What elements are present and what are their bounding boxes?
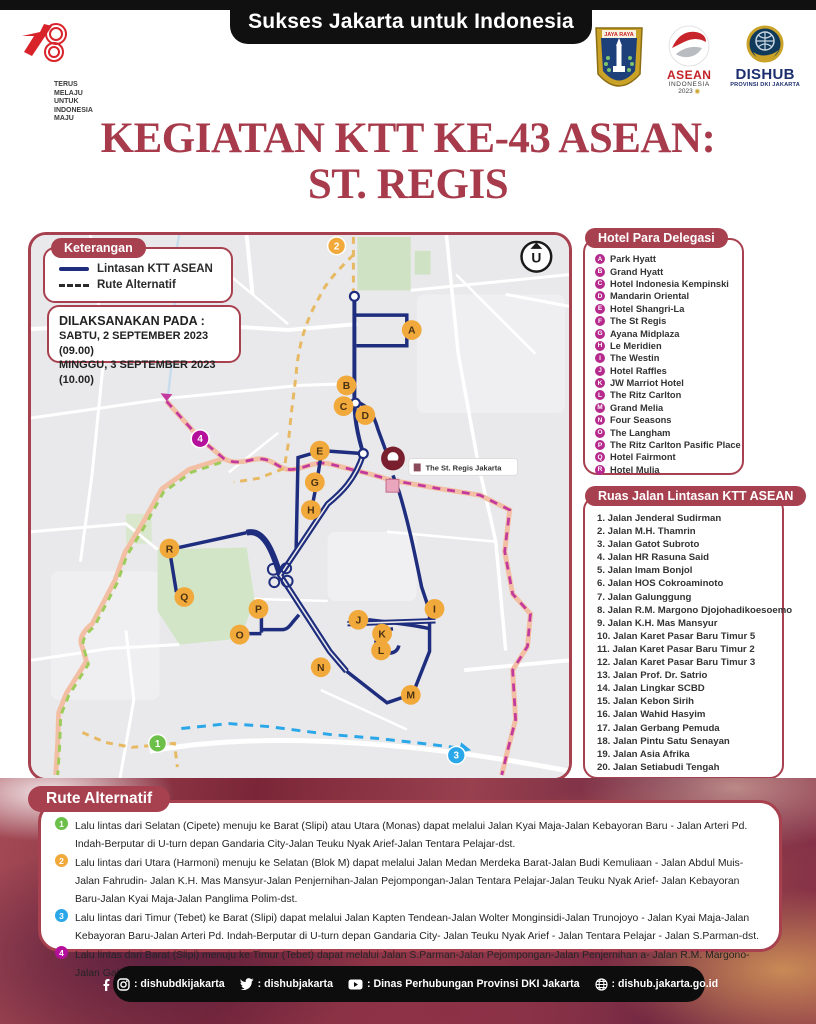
hotel-list-item: G Ayana Midplaza: [595, 327, 742, 339]
hut-ri-78-logo: TERUSMELAJUUNTUKINDONESIAMAJU: [18, 22, 158, 124]
header-logos: JAYA RAYA ASEAN INDONESIA 2023 ◉ DISHUB …: [590, 24, 800, 100]
svg-text:H: H: [307, 506, 315, 517]
svg-text:4: 4: [197, 434, 203, 445]
hotel-letter-bullet: O: [595, 428, 605, 438]
hotel-list-item: P The Ritz Carlton Pasific Place: [595, 439, 742, 451]
footer-item-youtube[interactable]: : Dinas Perhubungan Provinsi DKI Jakarta: [348, 978, 580, 990]
svg-text:B: B: [343, 381, 351, 392]
asean-logo-line3: 2023 ◉: [678, 88, 700, 96]
legend-item: Rute Alternatif: [59, 277, 231, 293]
twitter-icon: [240, 978, 254, 990]
road-list-item: 1. Jalan Jenderal Sudirman: [597, 513, 782, 526]
svg-text:D: D: [362, 411, 370, 422]
hotel-list-item: F The St Regis: [595, 315, 742, 327]
hotel-list-item: Q Hotel Fairmont: [595, 451, 742, 463]
road-list-item: 5. Jalan Imam Bonjol: [597, 565, 782, 578]
footer-item-facebook-instagram[interactable]: : dishubdkijakarta: [100, 978, 225, 991]
hotel-panel-badge: Hotel Para Delegasi: [585, 228, 728, 248]
page-title-line1: KEGIATAN KTT KE-43 ASEAN:: [0, 116, 816, 162]
svg-text:2: 2: [334, 241, 340, 252]
hotel-letter-bullet: G: [595, 329, 605, 339]
alt-route-number: 3: [55, 909, 68, 922]
alt-route-item: 1 Lalu lintas dari Selatan (Cipete) menu…: [55, 816, 765, 852]
road-list-item: 19. Jalan Asia Afrika: [597, 749, 782, 762]
asean-2023-logo: ASEAN INDONESIA 2023 ◉: [662, 24, 716, 96]
legend-label: Rute Alternatif: [97, 279, 176, 291]
hotel-letter-bullet: K: [595, 378, 605, 388]
park-monas: [357, 237, 410, 290]
footer-item-twitter[interactable]: : dishubjakarta: [240, 978, 333, 990]
hotel-list-item: I The Westin: [595, 352, 742, 364]
top-banner: Sukses Jakarta untuk Indonesia: [230, 0, 592, 44]
78-logo-icon: [18, 22, 74, 74]
alt-route-item: 3 Lalu lintas dari Timur (Tebet) ke Bara…: [55, 908, 765, 944]
hotel-list-item: O The Langham: [595, 426, 742, 438]
svg-text:G: G: [311, 478, 319, 489]
hotel-letter-bullet: R: [595, 465, 605, 475]
asean-logo-line2: INDONESIA: [669, 81, 710, 88]
road-list-item: 11. Jalan Karet Pasar Baru Timur 2: [597, 644, 782, 657]
road-list-item: 17. Jalan Gerbang Pemuda: [597, 723, 782, 736]
hotel-letter-bullet: I: [595, 353, 605, 363]
dishub-logo-line1: DISHUB: [735, 68, 794, 82]
alt-route-number: 1: [55, 817, 68, 830]
road-list-item: 8. Jalan R.M. Margono Djojohadikoesoemo: [597, 605, 782, 618]
road-list-item: 6. Jalan HOS Cokroaminoto: [597, 578, 782, 591]
road-list-item: 15. Jalan Kebon Sirih: [597, 696, 782, 709]
schedule-row-2: MINGGU, 3 SEPTEMBER 2023 (10.00): [59, 358, 239, 387]
svg-text:3: 3: [454, 751, 460, 762]
roads-panel: 1. Jalan Jenderal Sudirman2. Jalan M.H. …: [583, 496, 784, 779]
legend-box: Keterangan Lintasan KTT ASEAN Rute Alter…: [43, 247, 233, 303]
svg-text:L: L: [378, 646, 385, 657]
hotel-list-item: D Mandarin Oriental: [595, 290, 742, 302]
globe-icon: [595, 978, 608, 991]
page-title-line2: ST. REGIS: [0, 162, 816, 208]
dishub-icon: [743, 24, 787, 68]
instagram-icon: [117, 978, 130, 991]
svg-text:R: R: [166, 544, 174, 555]
roads-panel-badge: Ruas Jalan Lintasan KTT ASEAN: [585, 486, 806, 506]
legend-item: Lintasan KTT ASEAN: [59, 261, 231, 277]
svg-text:I: I: [433, 605, 436, 616]
hotel-letter-bullet: B: [595, 267, 605, 277]
hotel-panel: A Park Hyatt B Grand Hyatt C Hotel Indon…: [583, 238, 744, 475]
road-list-item: 10. Jalan Karet Pasar Baru Timur 5: [597, 631, 782, 644]
hotel-letter-bullet: M: [595, 403, 605, 413]
hotel-letter-bullet: E: [595, 304, 605, 314]
hotel-letter-bullet: J: [595, 366, 605, 376]
hotel-list-item: K JW Marriot Hotel: [595, 377, 742, 389]
schedule-heading: DILAKSANAKAN PADA :: [59, 314, 239, 329]
hotel-letter-bullet: P: [595, 440, 605, 450]
legend-badge: Keterangan: [51, 238, 146, 258]
svg-text:1: 1: [155, 739, 161, 750]
svg-text:Q: Q: [180, 593, 188, 604]
alt-route-number: 2: [55, 854, 68, 867]
dishub-logo: DISHUB PROVINSI DKI JAKARTA: [730, 24, 800, 89]
hotel-letter-bullet: L: [595, 390, 605, 400]
svg-text:P: P: [255, 605, 262, 616]
hotel-list-item: N Four Seasons: [595, 414, 742, 426]
hotel-letter-bullet: C: [595, 279, 605, 289]
road-list-item: 14. Jalan Lingkar SCBD: [597, 683, 782, 696]
svg-text:O: O: [236, 630, 244, 641]
hotel-list-item: R Hotel Mulia: [595, 464, 742, 476]
road-list-item: 9. Jalan K.H. Mas Mansyur: [597, 618, 782, 631]
svg-text:JAYA RAYA: JAYA RAYA: [604, 32, 634, 38]
svg-text:A: A: [408, 326, 416, 337]
hotel-list-item: M Grand Melia: [595, 402, 742, 414]
road-list-item: 2. Jalan M.H. Thamrin: [597, 526, 782, 539]
road-list-item: 12. Jalan Karet Pasar Baru Timur 3: [597, 657, 782, 670]
youtube-icon: [348, 979, 363, 990]
page-title: KEGIATAN KTT KE-43 ASEAN: ST. REGIS: [0, 116, 816, 208]
asean-2023-icon: [662, 24, 716, 68]
alt-route-item: 2 Lalu lintas dari Utara (Harmoni) menuj…: [55, 853, 765, 907]
hotel-letter-bullet: Q: [595, 452, 605, 462]
road-list-item: 18. Jalan Pintu Satu Senayan: [597, 736, 782, 749]
hotel-list-item: J Hotel Raffles: [595, 365, 742, 377]
top-banner-text: Sukses Jakarta untuk Indonesia: [248, 10, 574, 34]
jakarta-crest-icon: JAYA RAYA: [590, 24, 648, 100]
venue-label: The St. Regis Jakarta: [409, 459, 518, 476]
dishub-logo-line2: PROVINSI DKI JAKARTA: [730, 82, 800, 89]
facebook-icon: [100, 978, 113, 991]
schedule-row-1: SABTU, 2 SEPTEMBER 2023 (09.00): [59, 329, 239, 358]
svg-text:U: U: [531, 250, 541, 266]
svg-text:C: C: [340, 402, 348, 413]
hotel-list-item: C Hotel Indonesia Kempinski: [595, 278, 742, 290]
hotel-letter-bullet: H: [595, 341, 605, 351]
alternative-routes-badge: Rute Alternatif: [28, 786, 170, 812]
hotel-list-item: B Grand Hyatt: [595, 265, 742, 277]
asean-logo-line1: ASEAN: [667, 69, 712, 81]
svg-text:N: N: [317, 663, 325, 674]
hotel-list-item: H Le Meridien: [595, 340, 742, 352]
footer-item-globe[interactable]: : dishub.jakarta.go.id: [595, 978, 719, 991]
road-list-item: 7. Jalan Galunggung: [597, 592, 782, 605]
road-list-item: 13. Jalan Prof. Dr. Satrio: [597, 670, 782, 683]
svg-text:K: K: [378, 629, 386, 640]
hotel-list-item: E Hotel Shangri-La: [595, 303, 742, 315]
hotel-letter-bullet: N: [595, 415, 605, 425]
alt-route-number: 4: [55, 946, 68, 959]
compass-icon: U: [522, 242, 552, 272]
svg-text:M: M: [406, 691, 415, 702]
hotel-letter-bullet: A: [595, 254, 605, 264]
road-list-item: 20. Jalan Setiabudi Tengah: [597, 762, 782, 775]
svg-text:The St. Regis Jakarta: The St. Regis Jakarta: [426, 463, 503, 472]
legend-label: Lintasan KTT ASEAN: [97, 263, 213, 275]
legend-solid-line: [59, 267, 89, 272]
hotel-list-item: L The Ritz Carlton: [595, 389, 742, 401]
legend-dashed-line: [59, 284, 89, 287]
svg-text:J: J: [355, 615, 361, 626]
jakarta-crest-logo: JAYA RAYA: [590, 24, 648, 100]
alternative-routes-panel: 1 Lalu lintas dari Selatan (Cipete) menu…: [38, 800, 782, 952]
footer-social-bar: : dishubdkijakarta: dishubjakarta: Dinas…: [113, 966, 705, 1002]
road-list-item: 4. Jalan HR Rasuna Said: [597, 552, 782, 565]
road-list-item: 3. Jalan Gatot Subroto: [597, 539, 782, 552]
hotel-letter-bullet: F: [595, 316, 605, 326]
road-list-item: 16. Jalan Wahid Hasyim: [597, 709, 782, 722]
hotel-letter-bullet: D: [595, 291, 605, 301]
route-map: ABCDEGHIJKLMNOPQR1234 The St. Regis Jaka…: [28, 232, 572, 781]
hotel-list-item: A Park Hyatt: [595, 253, 742, 265]
schedule-box: DILAKSANAKAN PADA : SABTU, 2 SEPTEMBER 2…: [47, 305, 241, 363]
svg-text:E: E: [316, 446, 323, 457]
